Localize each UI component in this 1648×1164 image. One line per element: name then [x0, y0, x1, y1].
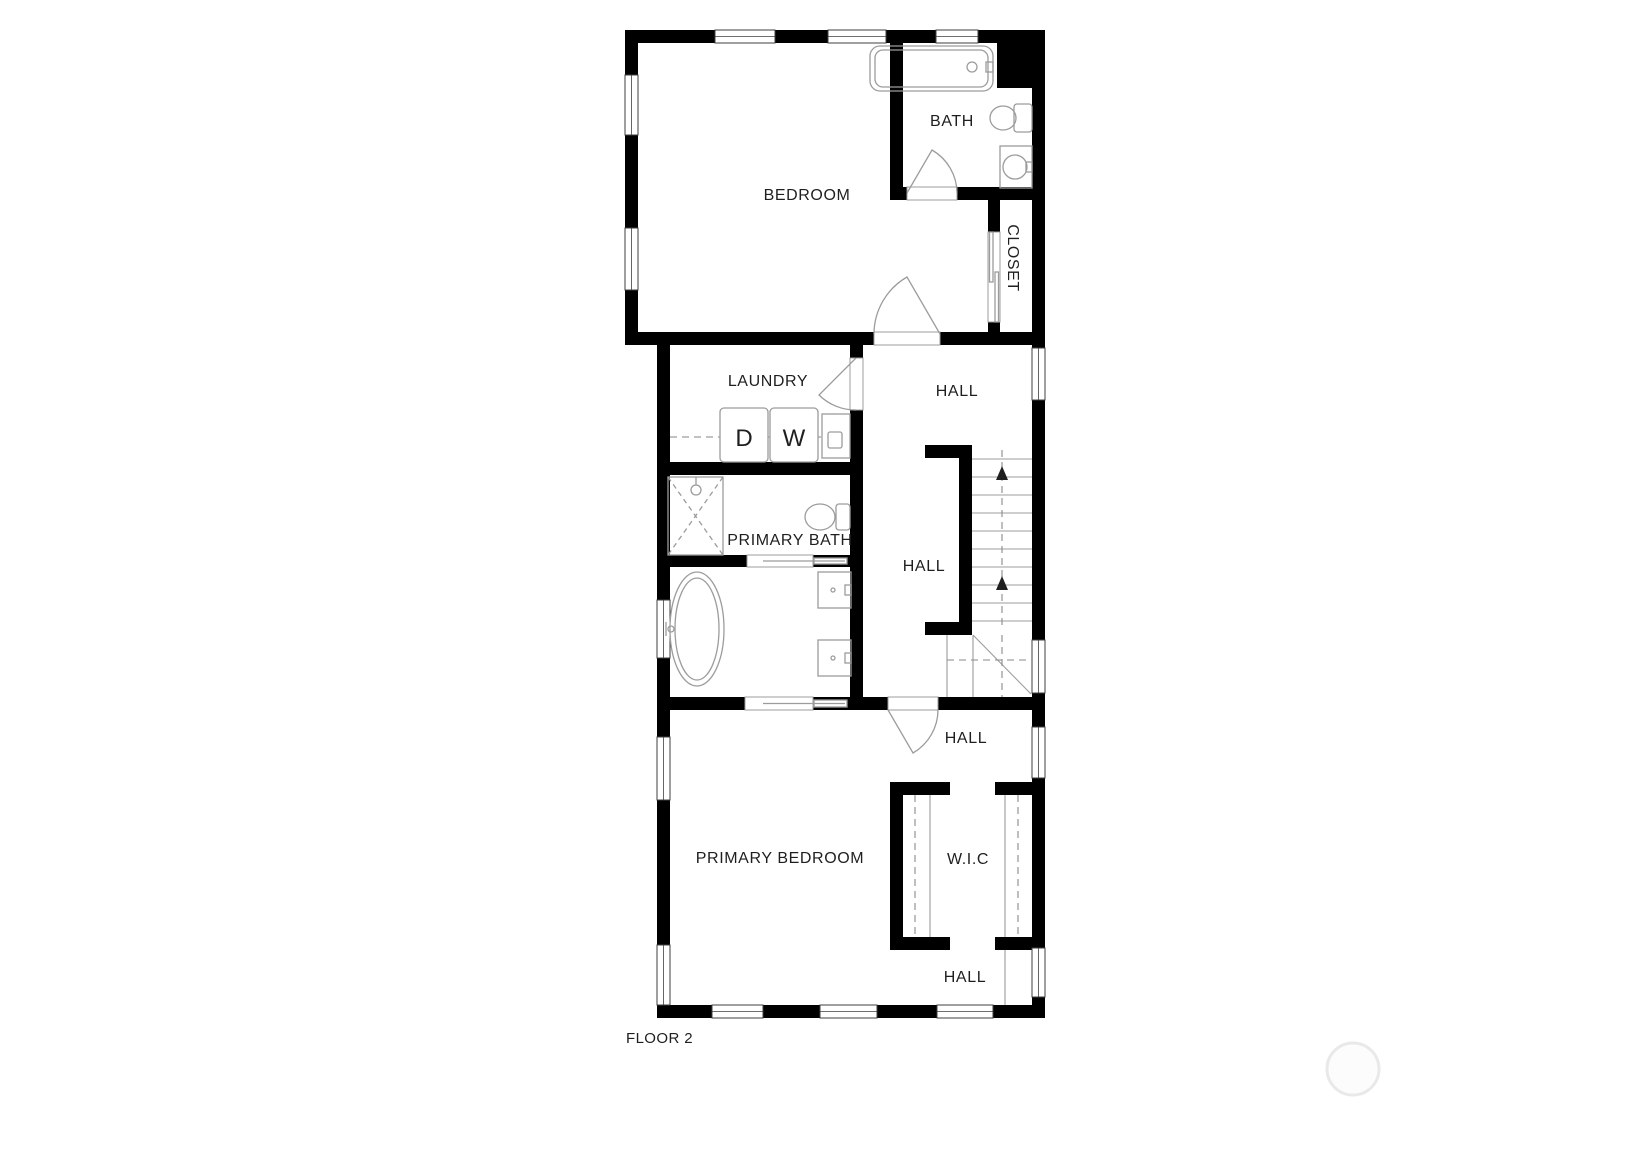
wall-closet-left-upper — [988, 200, 1000, 232]
bedroom-label: BEDROOM — [764, 187, 851, 204]
window — [937, 1005, 993, 1018]
wall-wic-left — [890, 782, 903, 950]
wall-primary-bedroom-top-left — [657, 697, 745, 710]
wall-hall-lower-left — [850, 697, 888, 710]
wall-bedroom-bottom-left — [625, 332, 874, 345]
closet-rod-left — [915, 795, 930, 937]
floor-plan-drawing: BEDROOM BATH CLOSET LAUNDRY HALL HALL HA… — [0, 0, 1648, 1164]
bath-sink — [1000, 146, 1032, 188]
wall-wic-top-left-stub — [890, 782, 950, 795]
primary-bath-label: PRIMARY BATH — [727, 532, 852, 549]
hall-top-label: HALL — [936, 383, 978, 400]
dryer-label: D — [735, 425, 752, 452]
window — [936, 30, 978, 43]
laundry-door-threshold — [850, 358, 863, 410]
toilet — [990, 104, 1032, 132]
hall-stairs-label: HALL — [903, 558, 945, 575]
window — [1032, 348, 1045, 400]
bedroom-door-threshold — [874, 332, 940, 345]
window — [625, 228, 638, 290]
wall-right — [1032, 30, 1045, 1018]
bath-label: BATH — [930, 113, 974, 130]
bedroom-door-swing — [874, 277, 940, 334]
wall-primary-bath-mid-left — [657, 555, 747, 567]
hall-bottom-label: HALL — [944, 969, 986, 986]
closet-rod-right — [1005, 795, 1018, 1005]
window — [657, 945, 670, 1005]
hall-door-threshold — [888, 697, 938, 710]
closet-label: CLOSET — [1004, 224, 1021, 292]
wall-left-lower — [657, 345, 670, 1018]
stair-up-arrow — [996, 466, 1008, 480]
vanity-sink — [818, 572, 851, 608]
window — [820, 1005, 877, 1018]
window — [828, 30, 886, 43]
wall-bedroom-bath-divider — [890, 43, 903, 200]
hall-mid-label: HALL — [945, 730, 987, 747]
wall-wic-bottom-left-stub — [890, 937, 950, 950]
vanity-sink — [818, 640, 851, 676]
wall-wic-bottom-right-stub — [995, 937, 1032, 950]
stair-up-arrow — [996, 576, 1008, 590]
wic-label: W.I.C — [947, 851, 989, 868]
shower — [668, 477, 723, 555]
hall-door-swing — [888, 710, 938, 753]
stair-railing-bottom — [925, 622, 972, 635]
freestanding-tub — [666, 572, 724, 686]
washer-label: W — [783, 425, 806, 452]
window — [1032, 948, 1045, 997]
window — [1032, 727, 1045, 778]
primary-bedroom-label: PRIMARY BEDROOM — [696, 850, 864, 867]
window — [1032, 640, 1045, 693]
closet-sliding-door — [988, 232, 1000, 322]
wall-bath-bottom-left — [890, 187, 907, 200]
bathtub — [870, 46, 993, 91]
wall-wic-top-right-stub — [995, 782, 1032, 795]
laundry-cabinet — [822, 414, 850, 458]
floor-plan-page: BEDROOM BATH CLOSET LAUNDRY HALL HALL HA… — [0, 0, 1648, 1164]
window — [715, 30, 775, 43]
watermark-circle — [1327, 1043, 1379, 1095]
windows — [625, 30, 1045, 1018]
wall-closet-left-lower — [988, 322, 1000, 332]
primary-toilet — [805, 504, 850, 530]
window — [625, 75, 638, 135]
wall-bath-chase — [997, 43, 1032, 88]
wall-hall-divider-upper — [850, 332, 863, 358]
walls — [625, 30, 1045, 1018]
bath-door-threshold — [907, 187, 957, 200]
laundry-label: LAUNDRY — [728, 373, 808, 390]
wall-hall-divider-lower — [850, 410, 863, 710]
floor-title: FLOOR 2 — [626, 1030, 693, 1047]
wall-hall-lower-right — [938, 697, 1045, 710]
stair-railing-wall — [959, 445, 972, 635]
window — [657, 737, 670, 800]
stair-landing — [947, 635, 1031, 697]
wall-laundry-bottom — [657, 462, 850, 475]
window — [712, 1005, 763, 1018]
wall-bedroom-bottom-right — [940, 332, 1045, 345]
wall-bath-bottom-right — [957, 187, 1045, 200]
